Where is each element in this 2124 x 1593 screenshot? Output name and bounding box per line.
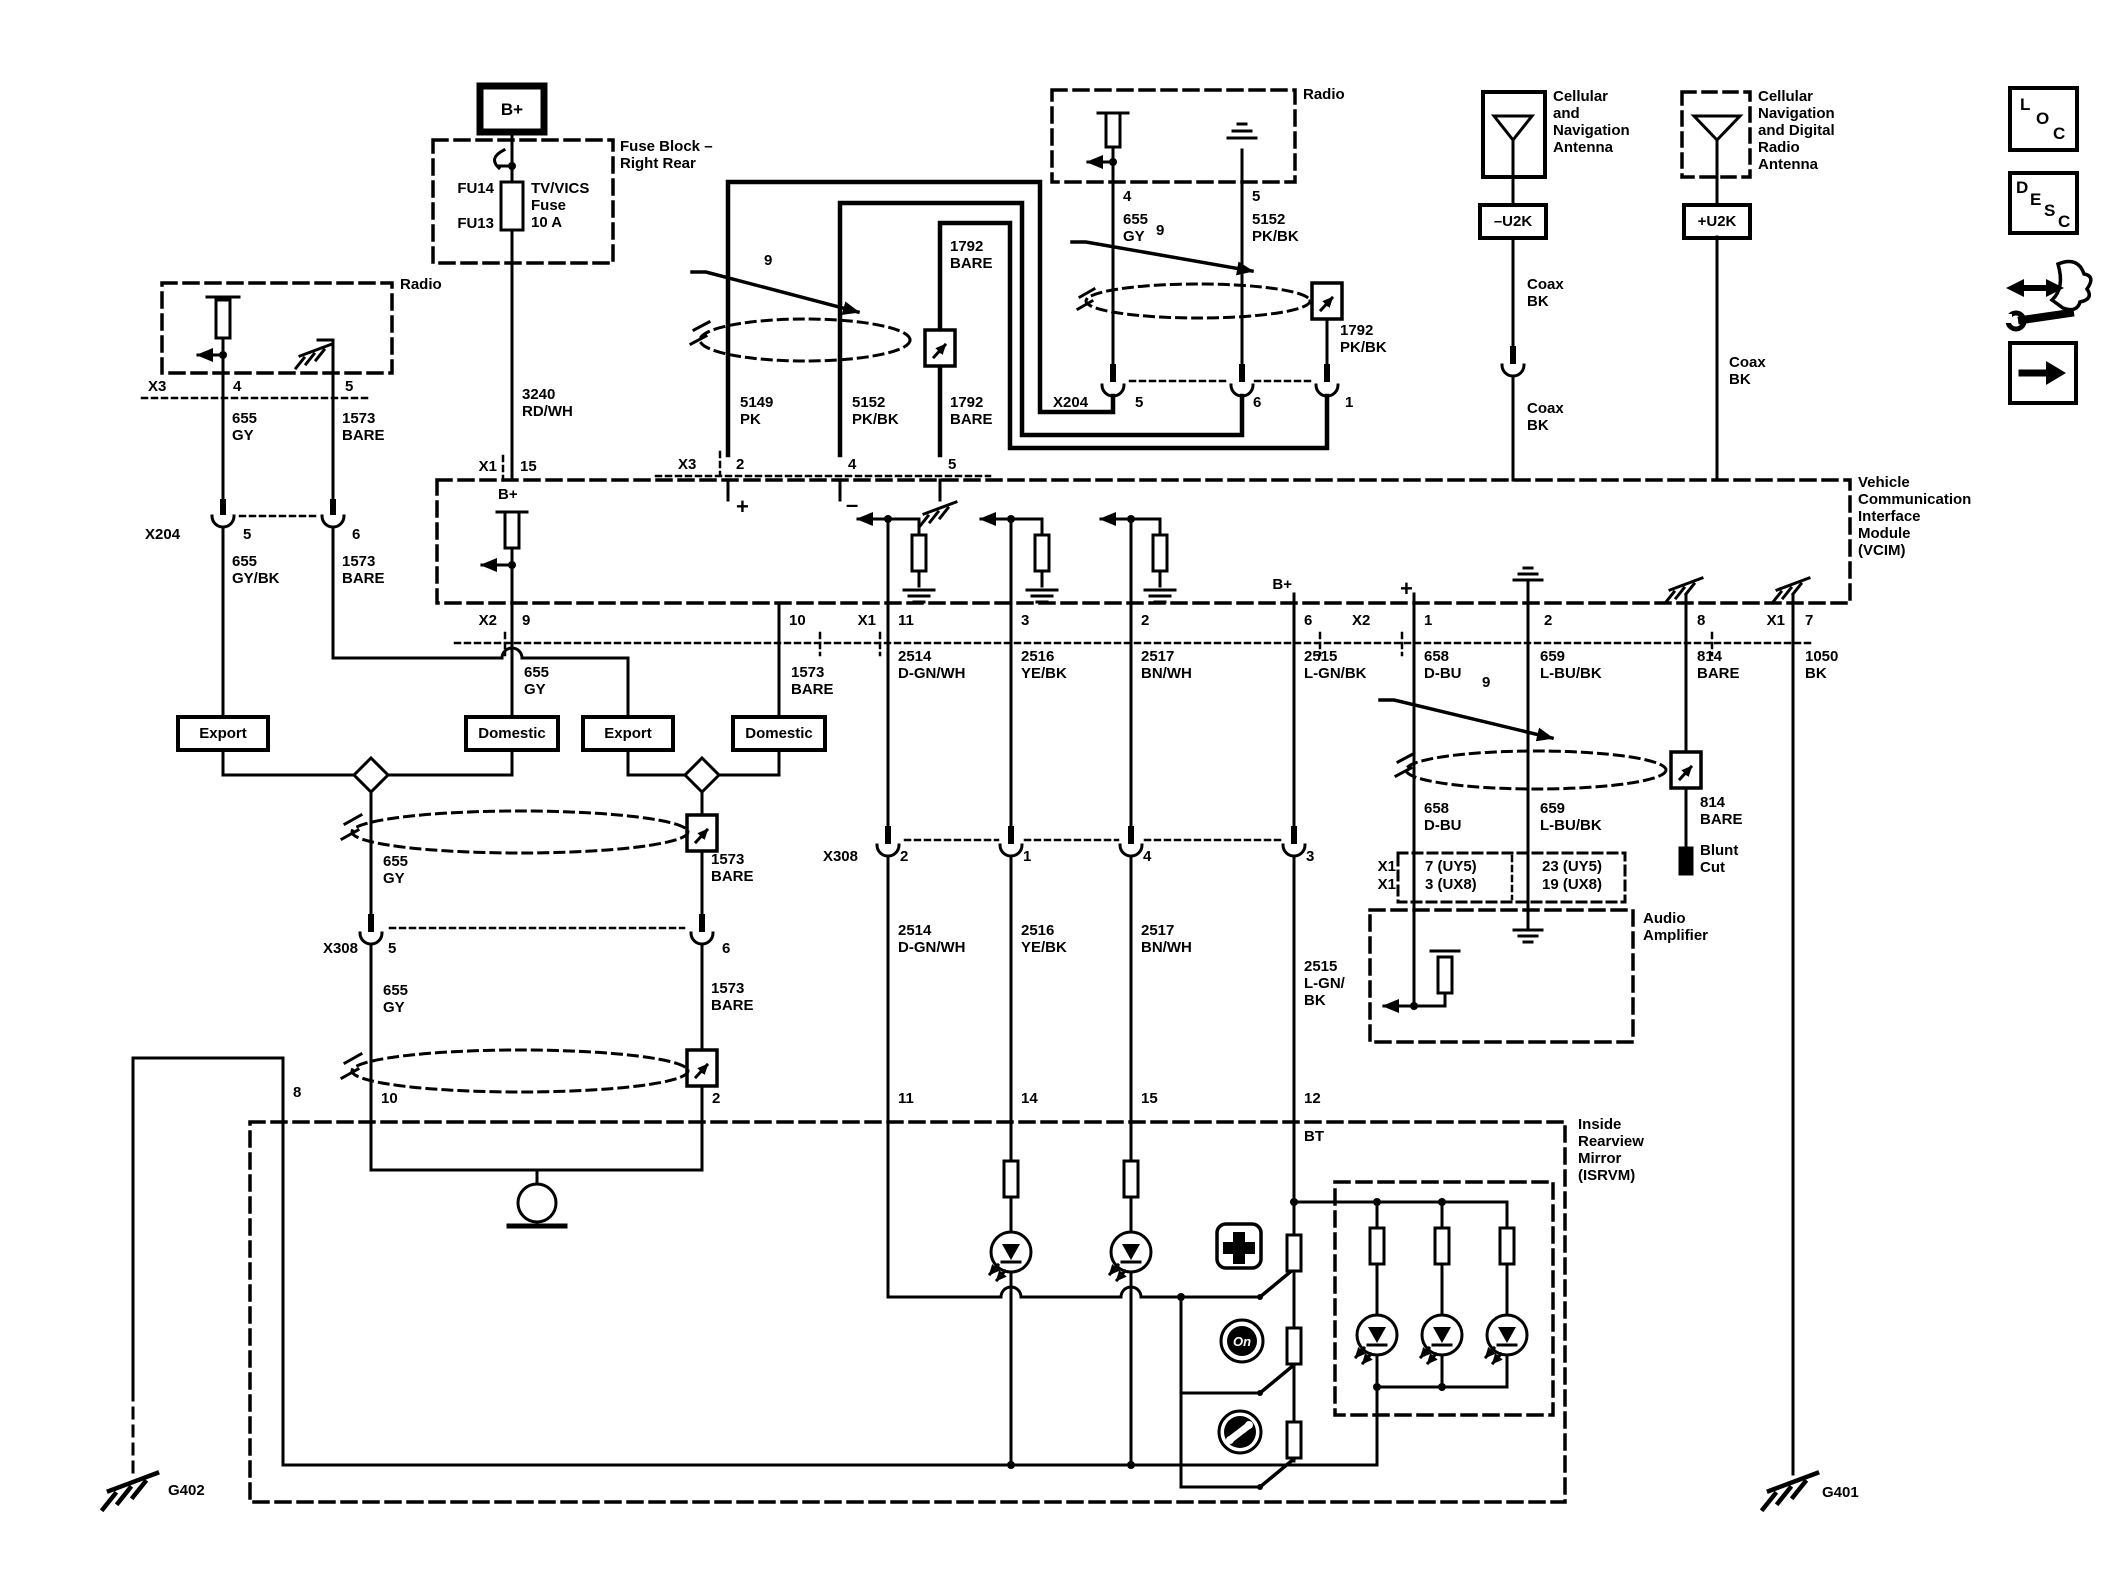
- x204-mid-pin6: 6: [1253, 394, 1261, 411]
- g402-label: G402: [168, 1482, 205, 1499]
- antenna2-label: Cellular Navigation and Digital Radio An…: [1758, 88, 1835, 173]
- loc-letter-o: O: [2036, 110, 2049, 127]
- sos-button-icon: [1217, 1224, 1261, 1268]
- arrow-icon: [2010, 343, 2076, 403]
- fuse-fu14: FU14: [457, 180, 494, 197]
- desc-letter-s: S: [2044, 202, 2055, 219]
- vcim-x2: X2: [479, 612, 497, 629]
- wire-655gy-b: 655 GY: [524, 664, 549, 698]
- vcim-plus-right: +: [1400, 578, 1413, 600]
- nav-icons: [2002, 88, 2091, 403]
- wire-2517-b: 2517 BN/WH: [1141, 922, 1192, 956]
- vcim-pin2r: 2: [1544, 612, 1552, 629]
- amp-x1a: X1: [1378, 858, 1396, 875]
- x204-mid-pin1: 1: [1345, 394, 1353, 411]
- wire-1573-c: 1573 BARE: [791, 664, 834, 698]
- fuse-fu13: FU13: [457, 215, 494, 232]
- x204-mid: X204: [1053, 394, 1088, 411]
- domestic-box-2: Domestic: [733, 717, 825, 750]
- g401-label: G401: [1822, 1484, 1859, 1501]
- vcim-plus: +: [736, 496, 749, 518]
- x308-left: X308: [323, 940, 358, 957]
- u2k-neg-box: –U2K: [1480, 205, 1546, 238]
- desc-letter-e: E: [2030, 191, 2041, 208]
- vcim-label: Vehicle Communication Interface Module (…: [1858, 474, 1971, 559]
- isrvm-box: [250, 1122, 1565, 1502]
- x308-pin5: 5: [388, 940, 396, 957]
- wire-2514-b: 2514 D-GN/WH: [898, 922, 966, 956]
- x308-pin4: 4: [1143, 848, 1151, 865]
- vcim-x3: X3: [678, 456, 696, 473]
- wire-659-b: 659 L-BU/BK: [1540, 800, 1602, 834]
- isrvm-pin2: 2: [712, 1090, 720, 1107]
- loc-letter-c: C: [2053, 125, 2065, 142]
- wire-655gy-c: 655 GY: [383, 853, 408, 887]
- radio-left-box: [162, 283, 392, 373]
- wire-2515-b: 2515 L-GN/ BK: [1304, 958, 1345, 1009]
- fuse-tvvics-icon: [501, 182, 523, 230]
- diagram-artwork: On: [0, 0, 2124, 1593]
- vcim-pin15: 15: [520, 458, 537, 475]
- x308-pin1: 1: [1023, 848, 1031, 865]
- wire-2514-a: 2514 D-GN/WH: [898, 648, 966, 682]
- vcim-x1r: X1: [1767, 612, 1785, 629]
- amp-label: Audio Amplifier: [1643, 910, 1708, 944]
- isrvm-pin14: 14: [1021, 1090, 1038, 1107]
- wire-2517-a: 2517 BN/WH: [1141, 648, 1192, 682]
- radio-mid-title: Radio: [1303, 86, 1345, 103]
- isrvm-pin12: 12: [1304, 1090, 1321, 1107]
- wire-659-a: 659 L-BU/BK: [1540, 648, 1602, 682]
- x204-left: X204: [145, 526, 180, 543]
- x3-pin2: 2: [736, 456, 744, 473]
- vcim-minus: –: [846, 494, 858, 516]
- isrvm-bt: BT: [1304, 1128, 1324, 1145]
- amp-pin-d: 19 (UX8): [1542, 876, 1602, 893]
- x3-pin4: 4: [848, 456, 856, 473]
- coax-label-a: Coax BK: [1527, 276, 1564, 310]
- wire-814-a: 814 BARE: [1697, 648, 1740, 682]
- component-boxes: [162, 90, 1850, 1502]
- fuse-desc: TV/VICS Fuse 10 A: [531, 180, 589, 231]
- radio-mid-pin5: 5: [1252, 188, 1260, 205]
- wire-814-b: 814 BARE: [1700, 794, 1743, 828]
- radio-mid-box: [1052, 90, 1295, 182]
- blunt-cut-terminator: [1680, 848, 1692, 874]
- desc-letter-d: D: [2016, 179, 2028, 196]
- radio-left-title: Radio: [400, 276, 442, 293]
- wire-655gy-a: 655 GY: [232, 410, 257, 444]
- isrvm-internals: [283, 1122, 1507, 1487]
- export-box-2: Export: [583, 717, 673, 750]
- vcim-x1-top: X1: [479, 458, 497, 475]
- vcim-internals: [482, 480, 1793, 603]
- radio-mid-pin4: 4: [1123, 188, 1131, 205]
- x308-pin3: 3: [1306, 848, 1314, 865]
- wire-2516-b: 2516 YE/BK: [1021, 922, 1067, 956]
- wire-1792pkbk: 1792 PK/BK: [1340, 322, 1387, 356]
- isrvm-pin11: 11: [898, 1090, 914, 1107]
- vcim-bplus-pin6: B+: [1272, 576, 1292, 593]
- wire-1573-d: 1573 BARE: [711, 851, 754, 885]
- bplus-terminal: B+: [482, 88, 542, 130]
- wire-1792-b: 1792 BARE: [950, 394, 993, 428]
- vcim-pin9: 9: [522, 612, 530, 629]
- isrvm-led-subbox: [1335, 1182, 1553, 1415]
- vcim-x2r: X2: [1352, 612, 1370, 629]
- u2k-pos-box: +U2K: [1684, 205, 1750, 238]
- isrvm-pin10: 10: [381, 1090, 398, 1107]
- wire-1050: 1050 BK: [1805, 648, 1838, 682]
- wire-1573-b: 1573 BARE: [342, 553, 385, 587]
- onstar-button-icon: On: [1221, 1320, 1263, 1362]
- phone-button-icon: [1219, 1411, 1261, 1453]
- g402-route: [133, 1058, 283, 1472]
- wire-2515-a: 2515 L-GN/BK: [1304, 648, 1367, 682]
- wiring-diagram-page: On: [0, 0, 2124, 1593]
- amp-pin-c: 23 (UY5): [1542, 858, 1602, 875]
- callout-9-right: 9: [1482, 674, 1490, 691]
- radio-left-pin5: 5: [345, 378, 353, 395]
- export-box-1: Export: [178, 717, 268, 750]
- x308-mid: X308: [823, 848, 858, 865]
- wire-1792-top: 1792 BARE: [950, 238, 993, 272]
- amp-x1b: X1: [1378, 876, 1396, 893]
- wire-1573-a: 1573 BARE: [342, 410, 385, 444]
- vcim-pin11: 11: [898, 612, 914, 629]
- amp-pin-a: 7 (UY5): [1425, 858, 1477, 875]
- vcim-box: [437, 480, 1850, 603]
- wire-658-a: 658 D-BU: [1424, 648, 1462, 682]
- right-columns: [1384, 568, 1793, 1474]
- callout-9-mid: 9: [1156, 222, 1164, 239]
- wire-1573-e: 1573 BARE: [711, 980, 754, 1014]
- x308-pin6: 6: [722, 940, 730, 957]
- junction-dots: [219, 158, 1446, 1490]
- onstar-text: On: [1233, 1334, 1251, 1349]
- x204-left-pin6: 6: [352, 526, 360, 543]
- wrench-arrow-icon: [2002, 262, 2091, 329]
- antenna1-label: Cellular and Navigation Antenna: [1553, 88, 1630, 156]
- desc-letter-c: C: [2058, 213, 2070, 230]
- loc-letter-l: L: [2020, 96, 2030, 113]
- vcim-pin1r: 1: [1424, 612, 1432, 629]
- audio-amp-box: [1370, 910, 1633, 1042]
- vcim-pin6: 6: [1304, 612, 1312, 629]
- domestic-box-1: Domestic: [466, 717, 558, 750]
- amp-pin-b: 3 (UX8): [1425, 876, 1477, 893]
- x204-left-pin5: 5: [243, 526, 251, 543]
- coax-label-c: Coax BK: [1729, 354, 1766, 388]
- wire-5149: 5149 PK: [740, 394, 773, 428]
- vcim-pin3: 3: [1021, 612, 1029, 629]
- wire-3240-label: 3240 RD/WH: [522, 386, 573, 420]
- coax-label-b: Coax BK: [1527, 400, 1564, 434]
- isrvm-label: Inside Rearview Mirror (ISRVM): [1578, 1116, 1644, 1184]
- isrvm-pin8: 8: [293, 1084, 301, 1101]
- blunt-cut-label: Blunt Cut: [1700, 842, 1738, 876]
- callout-9-trio: 9: [764, 252, 772, 269]
- x3-pin5: 5: [948, 456, 956, 473]
- vcim-pin10: 10: [789, 612, 806, 629]
- wire-5152-b: 5152 PK/BK: [852, 394, 899, 428]
- vcim-pin8r: 8: [1697, 612, 1705, 629]
- radio-left-pin4: 4: [233, 378, 241, 395]
- vcim-bplus-in: B+: [498, 486, 518, 503]
- vcim-pin7r: 7: [1805, 612, 1813, 629]
- fuse-block-title: Fuse Block – Right Rear: [620, 138, 713, 172]
- x308-pin2: 2: [900, 848, 908, 865]
- wire-658-b: 658 D-BU: [1424, 800, 1462, 834]
- wire-2516-a: 2516 YE/BK: [1021, 648, 1067, 682]
- wire-655gybk: 655 GY/BK: [232, 553, 280, 587]
- vcim-pin2: 2: [1141, 612, 1149, 629]
- x204-mid-pin5: 5: [1135, 394, 1143, 411]
- wire-655gy-d: 655 GY: [383, 982, 408, 1016]
- wire-5152-mid: 5152 PK/BK: [1252, 211, 1299, 245]
- vcim-x1: X1: [858, 612, 876, 629]
- isrvm-pin15: 15: [1141, 1090, 1158, 1107]
- radio-left-x3: X3: [148, 378, 166, 395]
- wire-655gy-mid: 655 GY: [1123, 211, 1148, 245]
